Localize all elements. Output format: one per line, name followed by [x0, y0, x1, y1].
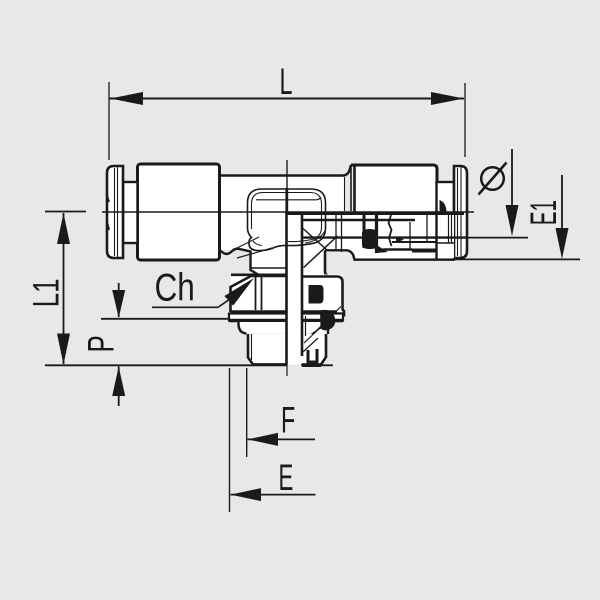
svg-text:Ch: Ch	[155, 267, 195, 310]
svg-text:E1: E1	[524, 200, 565, 225]
svg-text:L1: L1	[25, 278, 67, 307]
svg-text:E: E	[279, 457, 294, 498]
svg-text:F: F	[281, 399, 295, 441]
svg-text:P: P	[80, 335, 122, 352]
svg-text:L: L	[280, 60, 293, 102]
